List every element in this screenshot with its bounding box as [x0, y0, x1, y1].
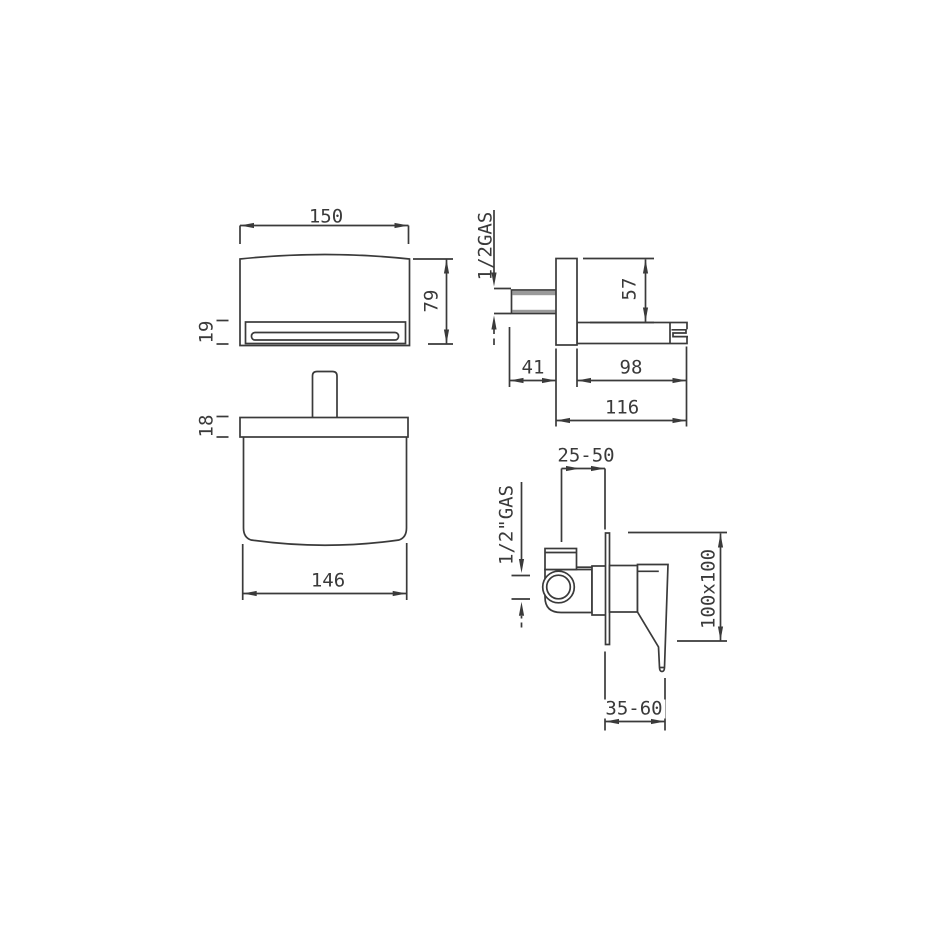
dim-label-57: 57	[621, 278, 640, 301]
dim-label-146: 146	[311, 572, 345, 591]
dim-label-height-79: 79	[423, 290, 442, 313]
dim-label-plate-size: 100x100	[700, 549, 719, 629]
drawing-linework	[0, 0, 950, 950]
dim-label-thread-mixer: 1/2"GAS	[498, 485, 517, 565]
spout-side-view	[491, 210, 688, 427]
dim-label-41: 41	[522, 359, 545, 378]
dim-label-depth-range: 25-50	[557, 447, 614, 466]
dim-label-slot-19: 19	[198, 321, 217, 344]
dim-label-thread-side: 1/2GAS	[477, 212, 496, 281]
dim-label-98: 98	[620, 359, 643, 378]
dim-label-width-150: 150	[309, 208, 343, 227]
dim-label-handle-range: 35-60	[602, 700, 665, 719]
dim-label-18: 18	[198, 415, 217, 438]
technical-drawing: 150 79 19 1/2GAS 57 41 98 116 18 146 25-…	[0, 0, 950, 950]
mixer-side-view	[512, 466, 728, 731]
spout-top-view	[217, 372, 409, 601]
spout-front-view	[217, 223, 454, 346]
dim-label-116: 116	[605, 399, 639, 418]
